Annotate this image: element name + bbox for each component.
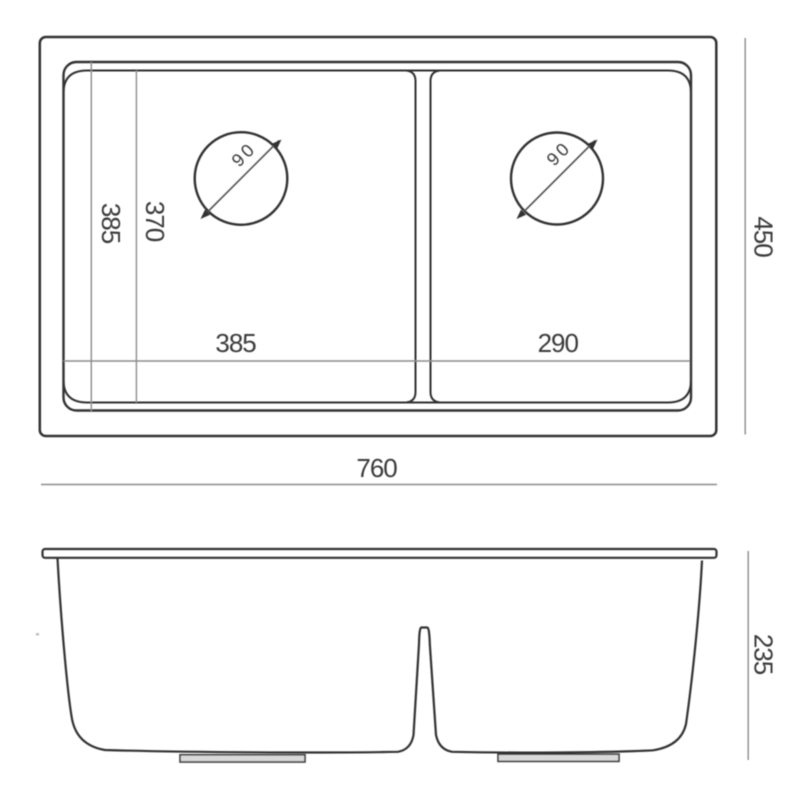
svg-text:760: 760 xyxy=(356,453,397,483)
svg-text:385: 385 xyxy=(215,328,256,358)
svg-text:290: 290 xyxy=(538,328,579,358)
svg-text:370: 370 xyxy=(140,201,170,242)
svg-text:450: 450 xyxy=(748,216,778,257)
svg-text:385: 385 xyxy=(96,203,126,244)
svg-text:235: 235 xyxy=(749,634,779,675)
